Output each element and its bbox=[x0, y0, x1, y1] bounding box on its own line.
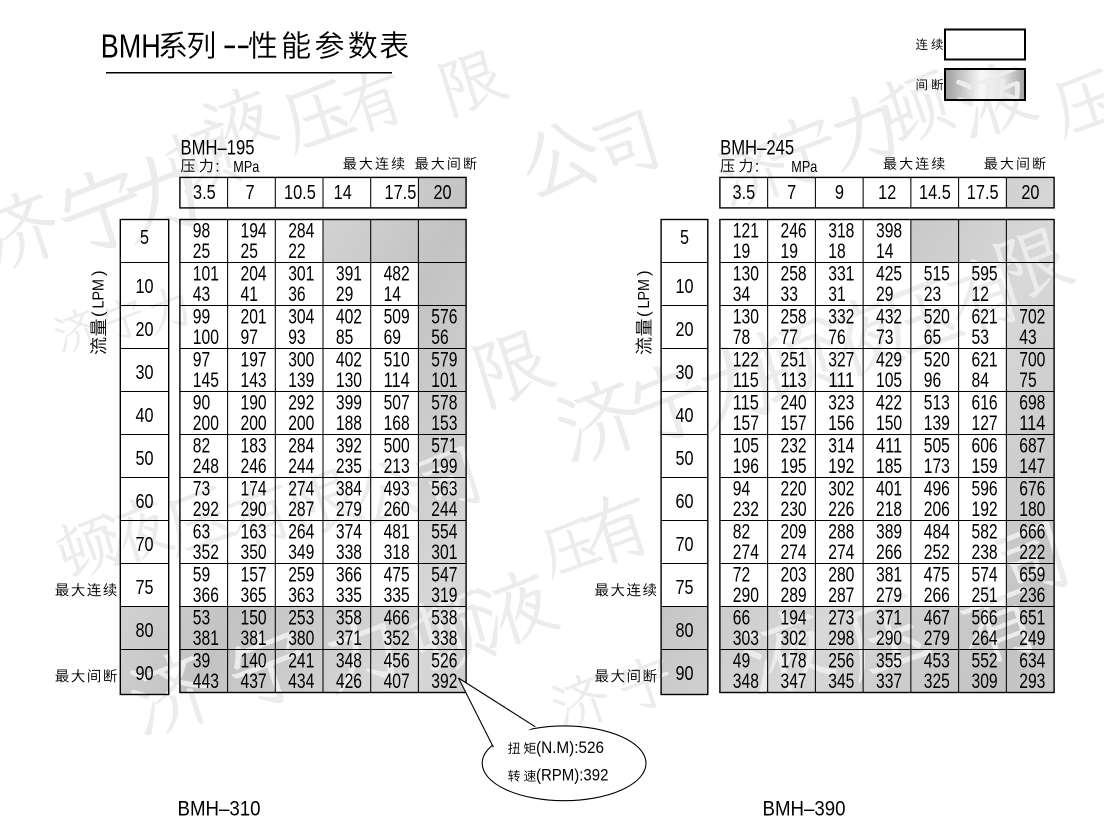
svg-text:(: ( bbox=[634, 311, 653, 317]
svg-text:3.5: 3.5 bbox=[733, 182, 756, 204]
svg-text:111: 111 bbox=[828, 369, 854, 392]
svg-text:130: 130 bbox=[336, 369, 362, 392]
svg-text:114: 114 bbox=[384, 369, 410, 392]
svg-text:349: 349 bbox=[288, 541, 314, 564]
svg-text:69: 69 bbox=[384, 326, 401, 349]
svg-text:30: 30 bbox=[675, 362, 693, 384]
svg-text:96: 96 bbox=[924, 369, 941, 392]
svg-text:443: 443 bbox=[193, 670, 219, 693]
svg-text:7: 7 bbox=[787, 182, 796, 204]
svg-text:29: 29 bbox=[876, 283, 893, 306]
svg-text:319: 319 bbox=[431, 584, 457, 607]
svg-text::: : bbox=[215, 159, 219, 176]
svg-text:380: 380 bbox=[288, 627, 314, 650]
svg-text:20: 20 bbox=[1021, 182, 1039, 204]
svg-text:180: 180 bbox=[1019, 498, 1045, 521]
svg-text:BMH–195: BMH–195 bbox=[181, 136, 255, 160]
svg-text:14.5: 14.5 bbox=[919, 182, 951, 204]
svg-text:192: 192 bbox=[972, 498, 998, 521]
svg-text:5: 5 bbox=[680, 227, 689, 249]
svg-text:150: 150 bbox=[876, 412, 902, 435]
svg-text:213: 213 bbox=[384, 455, 410, 478]
svg-text:80: 80 bbox=[136, 620, 154, 642]
svg-text:434: 434 bbox=[288, 670, 314, 693]
svg-text:238: 238 bbox=[972, 541, 998, 564]
svg-text:BMH–390: BMH–390 bbox=[763, 797, 846, 817]
svg-text:335: 335 bbox=[336, 584, 362, 607]
svg-text:279: 279 bbox=[924, 627, 950, 650]
svg-text:274: 274 bbox=[733, 541, 759, 564]
svg-text:248: 248 bbox=[193, 455, 219, 478]
svg-text:MPa: MPa bbox=[791, 159, 817, 176]
svg-text:43: 43 bbox=[193, 283, 210, 306]
svg-text:301: 301 bbox=[431, 541, 457, 564]
svg-text:19: 19 bbox=[733, 240, 750, 263]
svg-text:192: 192 bbox=[828, 455, 854, 478]
svg-text:289: 289 bbox=[781, 584, 807, 607]
svg-text:MPa: MPa bbox=[233, 159, 259, 176]
svg-text:365: 365 bbox=[241, 584, 267, 607]
svg-text:30: 30 bbox=[136, 362, 154, 384]
svg-text:236: 236 bbox=[1019, 584, 1045, 607]
svg-text:10.5: 10.5 bbox=[284, 182, 316, 204]
svg-text:41: 41 bbox=[241, 283, 258, 306]
svg-text:70: 70 bbox=[136, 534, 154, 556]
svg-text:114: 114 bbox=[1019, 412, 1045, 435]
svg-text:56: 56 bbox=[431, 326, 448, 349]
svg-text:75: 75 bbox=[136, 577, 154, 599]
svg-text:17.5: 17.5 bbox=[385, 182, 417, 204]
svg-text:BMH–245: BMH–245 bbox=[720, 136, 794, 160]
svg-text:352: 352 bbox=[384, 627, 410, 650]
svg-text:LPM: LPM bbox=[91, 279, 108, 309]
svg-text:350: 350 bbox=[241, 541, 267, 564]
svg-text:232: 232 bbox=[733, 498, 759, 521]
svg-text:244: 244 bbox=[288, 455, 314, 478]
svg-text:159: 159 bbox=[972, 455, 998, 478]
svg-text:9: 9 bbox=[835, 182, 844, 204]
svg-text:226: 226 bbox=[828, 498, 854, 521]
svg-text:318: 318 bbox=[384, 541, 410, 564]
svg-text:338: 338 bbox=[336, 541, 362, 564]
svg-text:145: 145 bbox=[193, 369, 219, 392]
svg-text:12: 12 bbox=[878, 182, 896, 204]
svg-text:23: 23 bbox=[924, 283, 941, 306]
svg-text:80: 80 bbox=[675, 620, 693, 642]
svg-text:76: 76 bbox=[828, 326, 845, 349]
svg-text:292: 292 bbox=[193, 498, 219, 521]
svg-text:29: 29 bbox=[336, 283, 353, 306]
svg-text:200: 200 bbox=[241, 412, 267, 435]
svg-text:100: 100 bbox=[193, 326, 219, 349]
svg-text:246: 246 bbox=[241, 455, 267, 478]
svg-text:264: 264 bbox=[972, 627, 998, 650]
svg-text:303: 303 bbox=[733, 627, 759, 650]
svg-text:14: 14 bbox=[876, 240, 893, 263]
svg-text:20: 20 bbox=[675, 319, 693, 341]
svg-text:290: 290 bbox=[876, 627, 902, 650]
svg-text:366: 366 bbox=[193, 584, 219, 607]
svg-text:298: 298 bbox=[828, 627, 854, 650]
svg-text:): ) bbox=[89, 270, 108, 276]
svg-text:31: 31 bbox=[828, 283, 845, 306]
svg-text:363: 363 bbox=[288, 584, 314, 607]
svg-text:BMH–310: BMH–310 bbox=[178, 797, 261, 817]
svg-text:73: 73 bbox=[876, 326, 893, 349]
svg-text:279: 279 bbox=[336, 498, 362, 521]
svg-text:143: 143 bbox=[241, 369, 267, 392]
svg-text:17.5: 17.5 bbox=[967, 182, 999, 204]
svg-text:196: 196 bbox=[733, 455, 759, 478]
svg-text:53: 53 bbox=[972, 326, 989, 349]
svg-text:287: 287 bbox=[828, 584, 854, 607]
svg-text:218: 218 bbox=[876, 498, 902, 521]
svg-text:352: 352 bbox=[193, 541, 219, 564]
svg-text:235: 235 bbox=[336, 455, 362, 478]
svg-text:335: 335 bbox=[384, 584, 410, 607]
svg-text:40: 40 bbox=[136, 405, 154, 427]
svg-text:60: 60 bbox=[136, 491, 154, 513]
svg-text:251: 251 bbox=[972, 584, 998, 607]
svg-text:97: 97 bbox=[241, 326, 258, 349]
svg-text:244: 244 bbox=[431, 498, 457, 521]
svg-text:10: 10 bbox=[675, 276, 693, 298]
svg-text:274: 274 bbox=[781, 541, 807, 564]
svg-text:14: 14 bbox=[334, 182, 352, 204]
svg-text::: : bbox=[755, 159, 759, 176]
svg-text:381: 381 bbox=[241, 627, 267, 650]
svg-text:40: 40 bbox=[675, 405, 693, 427]
svg-text:260: 260 bbox=[384, 498, 410, 521]
svg-text:206: 206 bbox=[924, 498, 950, 521]
svg-text:70: 70 bbox=[675, 534, 693, 556]
svg-text:309: 309 bbox=[972, 670, 998, 693]
svg-text:101: 101 bbox=[431, 369, 457, 392]
svg-text:274: 274 bbox=[828, 541, 854, 564]
svg-text:105: 105 bbox=[876, 369, 902, 392]
svg-text:381: 381 bbox=[193, 627, 219, 650]
svg-text:5: 5 bbox=[140, 227, 149, 249]
svg-text:290: 290 bbox=[733, 584, 759, 607]
svg-text:20: 20 bbox=[136, 319, 154, 341]
svg-text:222: 222 bbox=[1019, 541, 1045, 564]
svg-text:230: 230 bbox=[781, 498, 807, 521]
svg-text:157: 157 bbox=[781, 412, 807, 435]
svg-text:75: 75 bbox=[1019, 369, 1036, 392]
svg-text:33: 33 bbox=[781, 283, 798, 306]
svg-text:371: 371 bbox=[336, 627, 362, 650]
svg-text:249: 249 bbox=[1019, 627, 1045, 650]
svg-text:34: 34 bbox=[733, 283, 750, 306]
svg-text:185: 185 bbox=[876, 455, 902, 478]
svg-text:(: ( bbox=[89, 311, 108, 317]
svg-text:): ) bbox=[634, 270, 653, 276]
svg-text:10: 10 bbox=[136, 276, 154, 298]
svg-text:90: 90 bbox=[675, 663, 693, 685]
svg-text:(N.M):526: (N.M):526 bbox=[536, 739, 604, 757]
svg-text:338: 338 bbox=[431, 627, 457, 650]
svg-text:200: 200 bbox=[288, 412, 314, 435]
svg-text:195: 195 bbox=[781, 455, 807, 478]
svg-text:18: 18 bbox=[828, 240, 845, 263]
svg-text:156: 156 bbox=[828, 412, 854, 435]
svg-text:348: 348 bbox=[733, 670, 759, 693]
svg-text:50: 50 bbox=[675, 448, 693, 470]
svg-text:252: 252 bbox=[924, 541, 950, 564]
svg-text:60: 60 bbox=[675, 491, 693, 513]
svg-text:65: 65 bbox=[924, 326, 941, 349]
svg-text:290: 290 bbox=[241, 498, 267, 521]
svg-text:153: 153 bbox=[431, 412, 457, 435]
svg-text:22: 22 bbox=[288, 240, 305, 263]
svg-text:200: 200 bbox=[193, 412, 219, 435]
svg-text:293: 293 bbox=[1019, 670, 1045, 693]
svg-text:287: 287 bbox=[288, 498, 314, 521]
svg-text:90: 90 bbox=[136, 663, 154, 685]
svg-text:115: 115 bbox=[733, 369, 759, 392]
svg-text:78: 78 bbox=[733, 326, 750, 349]
svg-text:188: 188 bbox=[336, 412, 362, 435]
svg-text:25: 25 bbox=[241, 240, 258, 263]
svg-text:19: 19 bbox=[781, 240, 798, 263]
svg-text:392: 392 bbox=[431, 670, 457, 693]
svg-text:85: 85 bbox=[336, 326, 353, 349]
svg-text:139: 139 bbox=[288, 369, 314, 392]
svg-text:127: 127 bbox=[972, 412, 998, 435]
svg-text:77: 77 bbox=[781, 326, 798, 349]
svg-text:(RPM):392: (RPM):392 bbox=[536, 767, 608, 785]
svg-text:173: 173 bbox=[924, 455, 950, 478]
svg-text:437: 437 bbox=[241, 670, 267, 693]
svg-text:302: 302 bbox=[781, 627, 807, 650]
svg-text:168: 168 bbox=[384, 412, 410, 435]
svg-text:3.5: 3.5 bbox=[193, 182, 216, 204]
svg-text:93: 93 bbox=[288, 326, 305, 349]
svg-text:266: 266 bbox=[924, 584, 950, 607]
svg-text:75: 75 bbox=[675, 577, 693, 599]
svg-text:50: 50 bbox=[136, 448, 154, 470]
svg-text:199: 199 bbox=[431, 455, 457, 478]
svg-text:337: 337 bbox=[876, 670, 902, 693]
svg-text:7: 7 bbox=[245, 182, 254, 204]
svg-text:12: 12 bbox=[972, 283, 989, 306]
svg-text:113: 113 bbox=[781, 369, 807, 392]
svg-text:BMH: BMH bbox=[101, 27, 161, 64]
svg-text:139: 139 bbox=[924, 412, 950, 435]
svg-text:LPM: LPM bbox=[636, 279, 653, 309]
svg-text:325: 325 bbox=[924, 670, 950, 693]
svg-text:345: 345 bbox=[828, 670, 854, 693]
svg-text:25: 25 bbox=[193, 240, 210, 263]
svg-text:147: 147 bbox=[1019, 455, 1045, 478]
svg-text:84: 84 bbox=[972, 369, 989, 392]
svg-text:407: 407 bbox=[384, 670, 410, 693]
svg-text:347: 347 bbox=[781, 670, 807, 693]
svg-text:279: 279 bbox=[876, 584, 902, 607]
svg-text:20: 20 bbox=[433, 182, 451, 204]
svg-text:266: 266 bbox=[876, 541, 902, 564]
svg-text:43: 43 bbox=[1019, 326, 1036, 349]
svg-text:14: 14 bbox=[384, 283, 401, 306]
svg-text:157: 157 bbox=[733, 412, 759, 435]
svg-text:36: 36 bbox=[288, 283, 305, 306]
svg-text:426: 426 bbox=[336, 670, 362, 693]
